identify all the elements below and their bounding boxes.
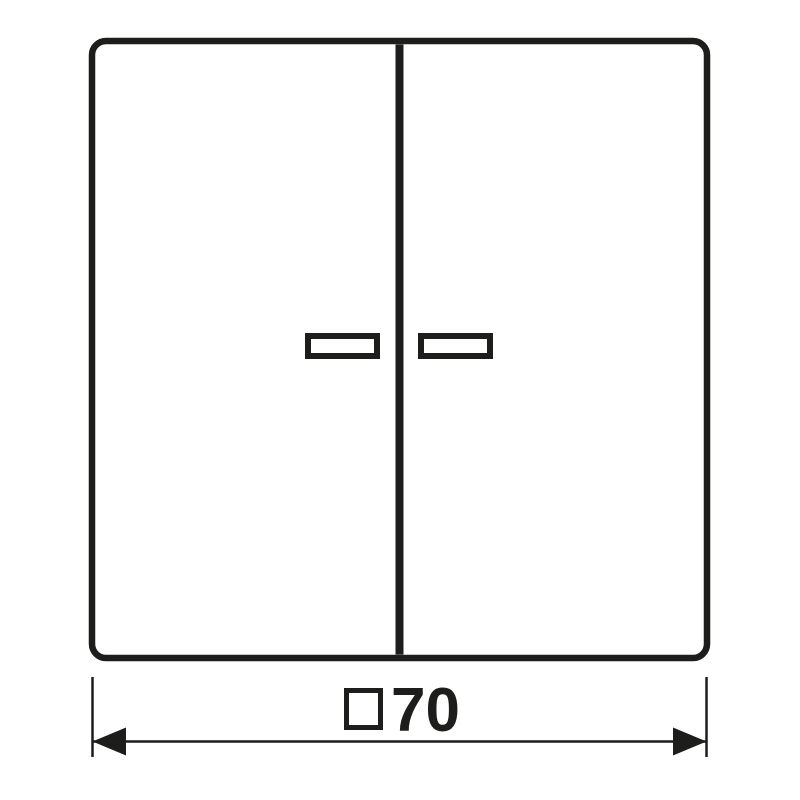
dimension-value: 70	[391, 676, 460, 745]
drawing-svg: 70	[0, 0, 800, 800]
technical-drawing: 70	[0, 0, 800, 800]
dimension-arrow-right-icon	[673, 728, 707, 756]
dimension-arrow-left-icon	[93, 728, 127, 756]
right-rocker-lens	[421, 336, 490, 356]
left-rocker-lens	[308, 336, 377, 356]
square-dimension-icon	[347, 691, 381, 728]
